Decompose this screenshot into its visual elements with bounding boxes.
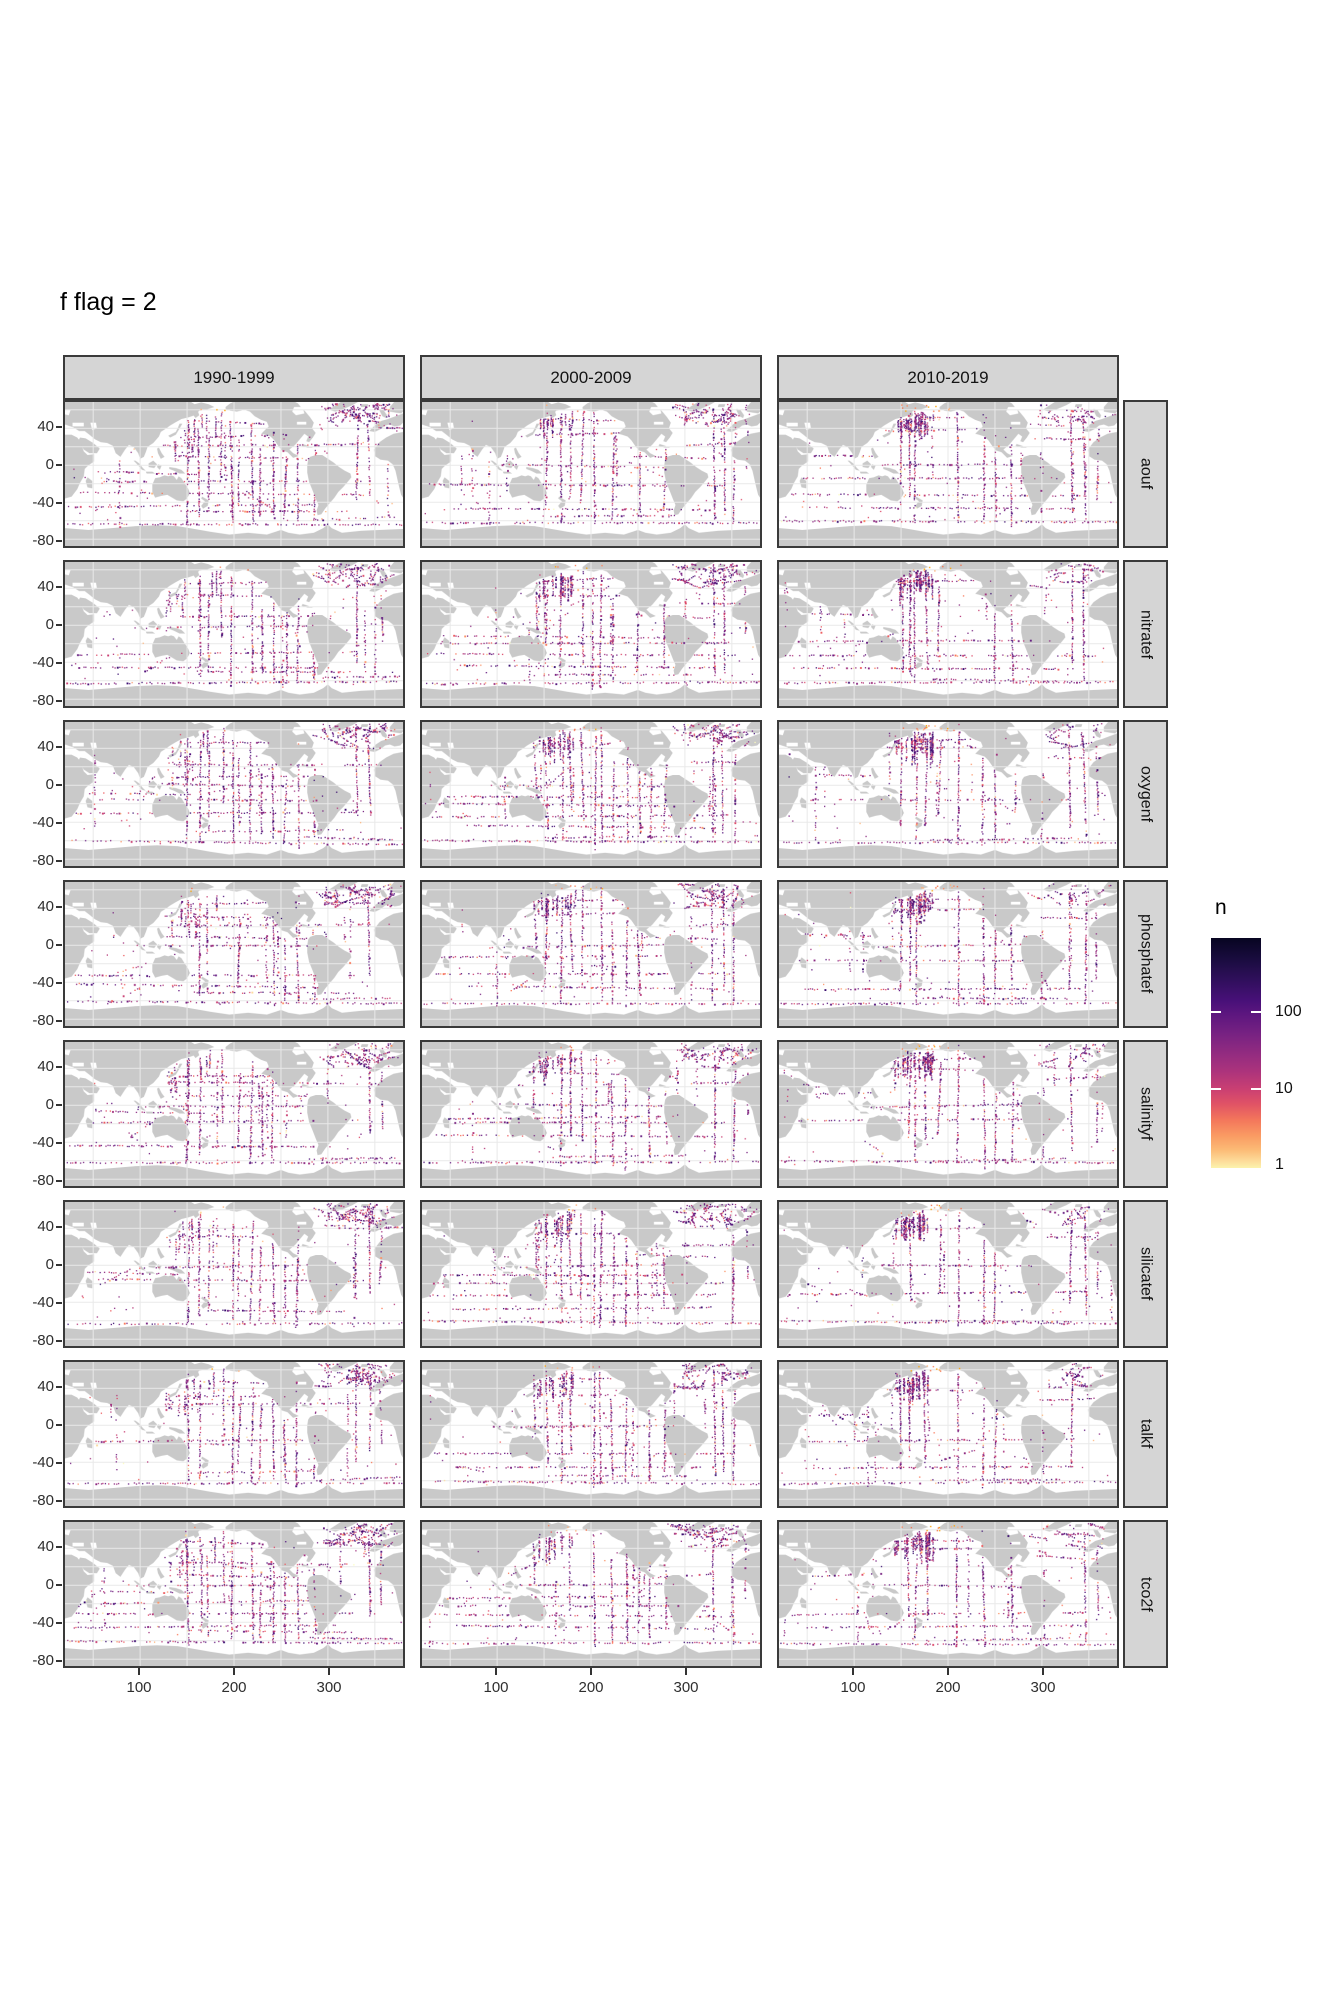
map-panel-r7-c1 [420,1520,762,1668]
facet-row-strip-5: silicatef [1123,1200,1168,1348]
facet-row-strip-3: phosphatef [1123,880,1168,1028]
y-tick-mark [56,1226,62,1228]
y-tick-mark [56,746,62,748]
y-tick-mark [56,1546,62,1548]
facet-row-strip-6: talkf [1123,1360,1168,1508]
y-tick-label: -40 [10,654,54,672]
y-tick-label: 40 [10,418,54,436]
map-panel-r3-c1 [420,880,762,1028]
legend-tick-label: 1 [1275,1157,1284,1173]
map-panel-r2-c0 [63,720,405,868]
world-map-canvas [422,1522,760,1666]
world-map-canvas [779,1042,1117,1186]
map-panel-r0-c1 [420,400,762,548]
facet-row-label: oxygenf [1137,766,1155,822]
y-tick-label: 0 [10,776,54,794]
facet-row-strip-0: aouf [1123,400,1168,548]
y-tick-label: -40 [10,1134,54,1152]
facet-column-label: 2000-2009 [550,368,631,388]
y-tick-label: -80 [10,692,54,710]
y-tick-mark [56,662,62,664]
map-panel-r4-c0 [63,1040,405,1188]
world-map-canvas [422,1362,760,1506]
y-tick-label: 0 [10,1256,54,1274]
y-tick-mark [56,860,62,862]
map-panel-r3-c2 [777,880,1119,1028]
x-tick-label: 200 [204,1679,264,1697]
y-tick-label: 40 [10,1058,54,1076]
legend-title: n [1215,896,1261,920]
world-map-canvas [422,722,760,866]
world-map-canvas [422,1202,760,1346]
y-tick-mark [56,426,62,428]
y-tick-mark [56,464,62,466]
y-tick-mark [56,1500,62,1502]
plot-title: f flag = 2 [60,288,157,317]
map-panel-r1-c0 [63,560,405,708]
x-tick-label: 300 [656,1679,716,1697]
facet-column-label: 1990-1999 [193,368,274,388]
map-panel-r2-c2 [777,720,1119,868]
x-tick-mark [138,1668,140,1675]
y-tick-label: 40 [10,578,54,596]
y-tick-mark [56,1066,62,1068]
world-map-canvas [779,402,1117,546]
facet-column-strip-1: 2000-2009 [420,355,762,400]
y-tick-mark [56,1302,62,1304]
legend-tick-mark [1211,1011,1221,1013]
y-tick-label: -40 [10,494,54,512]
y-tick-mark [56,1180,62,1182]
y-tick-label: -40 [10,1454,54,1472]
map-panel-r1-c2 [777,560,1119,708]
legend: n 100101 [1211,896,1261,1168]
world-map-canvas [422,402,760,546]
facet-row-label: salinityf [1137,1087,1155,1140]
map-panel-r6-c0 [63,1360,405,1508]
map-panel-r3-c0 [63,880,405,1028]
y-tick-label: -40 [10,814,54,832]
legend-colorbar: 100101 [1211,938,1261,1168]
y-tick-label: 40 [10,1378,54,1396]
y-tick-mark [56,1462,62,1464]
y-tick-mark [56,1424,62,1426]
facet-row-strip-1: nitratef [1123,560,1168,708]
y-tick-label: 40 [10,1218,54,1236]
x-tick-mark [495,1668,497,1675]
y-tick-label: 40 [10,1538,54,1556]
x-tick-label: 200 [918,1679,978,1697]
x-tick-mark [590,1668,592,1675]
y-tick-label: -80 [10,1012,54,1030]
y-tick-label: 0 [10,936,54,954]
figure: f flag = 2 1990-19992000-20092010-2019 a… [0,0,1344,2016]
facet-row-label: talkf [1137,1419,1155,1448]
x-tick-mark [947,1668,949,1675]
x-tick-label: 100 [466,1679,526,1697]
x-tick-mark [1042,1668,1044,1675]
facet-row-strip-2: oxygenf [1123,720,1168,868]
y-tick-mark [56,1142,62,1144]
world-map-canvas [422,882,760,1026]
x-tick-label: 300 [299,1679,359,1697]
y-tick-label: -80 [10,1652,54,1670]
y-tick-mark [56,982,62,984]
world-map-canvas [779,1522,1117,1666]
y-tick-mark [56,1386,62,1388]
map-panel-r1-c1 [420,560,762,708]
facet-row-label: aouf [1137,458,1155,489]
world-map-canvas [65,562,403,706]
x-tick-mark [328,1668,330,1675]
x-tick-mark [685,1668,687,1675]
world-map-canvas [65,882,403,1026]
y-tick-label: 0 [10,1576,54,1594]
y-tick-label: -80 [10,1332,54,1350]
x-tick-label: 200 [561,1679,621,1697]
y-tick-mark [56,944,62,946]
y-tick-label: 0 [10,1096,54,1114]
y-tick-label: -40 [10,974,54,992]
x-tick-mark [852,1668,854,1675]
y-tick-mark [56,502,62,504]
map-panel-r7-c2 [777,1520,1119,1668]
y-tick-mark [56,700,62,702]
y-tick-label: -80 [10,852,54,870]
y-tick-label: 0 [10,456,54,474]
world-map-canvas [779,722,1117,866]
y-tick-mark [56,906,62,908]
world-map-canvas [422,562,760,706]
world-map-canvas [422,1042,760,1186]
facet-row-strip-7: tco2f [1123,1520,1168,1668]
map-panel-r2-c1 [420,720,762,868]
y-tick-mark [56,1340,62,1342]
world-map-canvas [779,1362,1117,1506]
y-tick-mark [56,586,62,588]
map-panel-r5-c1 [420,1200,762,1348]
x-tick-mark [233,1668,235,1675]
map-panel-r7-c0 [63,1520,405,1668]
world-map-canvas [65,1042,403,1186]
map-panel-r5-c0 [63,1200,405,1348]
y-tick-label: -80 [10,1492,54,1510]
y-tick-mark [56,1104,62,1106]
world-map-canvas [65,1202,403,1346]
map-panel-r0-c0 [63,400,405,548]
x-tick-label: 100 [109,1679,169,1697]
facet-row-label: nitratef [1137,610,1155,659]
map-panel-r0-c2 [777,400,1119,548]
world-map-canvas [779,882,1117,1026]
x-tick-label: 300 [1013,1679,1073,1697]
map-panel-r5-c2 [777,1200,1119,1348]
legend-tick-mark [1251,1088,1261,1090]
facet-row-label: silicatef [1137,1247,1155,1300]
y-tick-label: 40 [10,898,54,916]
facet-row-label: phosphatef [1137,914,1155,993]
y-tick-mark [56,1584,62,1586]
y-tick-mark [56,1660,62,1662]
y-tick-label: 0 [10,616,54,634]
facet-row-strip-4: salinityf [1123,1040,1168,1188]
y-tick-mark [56,1622,62,1624]
y-tick-mark [56,540,62,542]
y-tick-label: 40 [10,738,54,756]
y-tick-mark [56,1264,62,1266]
legend-tick-mark [1211,1088,1221,1090]
y-tick-mark [56,784,62,786]
y-tick-label: -40 [10,1294,54,1312]
facet-column-strip-0: 1990-1999 [63,355,405,400]
map-panel-r4-c1 [420,1040,762,1188]
y-tick-label: -80 [10,1172,54,1190]
facet-row-label: tco2f [1137,1577,1155,1612]
y-tick-mark [56,822,62,824]
world-map-canvas [65,402,403,546]
y-tick-label: -40 [10,1614,54,1632]
map-panel-r6-c2 [777,1360,1119,1508]
x-tick-label: 100 [823,1679,883,1697]
map-panel-r6-c1 [420,1360,762,1508]
y-tick-mark [56,1020,62,1022]
legend-tick-mark [1251,1011,1261,1013]
world-map-canvas [65,1362,403,1506]
legend-tick-label: 10 [1275,1081,1293,1097]
world-map-canvas [779,1202,1117,1346]
facet-column-label: 2010-2019 [907,368,988,388]
facet-column-strip-2: 2010-2019 [777,355,1119,400]
map-panel-r4-c2 [777,1040,1119,1188]
legend-tick-label: 100 [1275,1004,1302,1020]
world-map-canvas [65,722,403,866]
world-map-canvas [65,1522,403,1666]
y-tick-label: 0 [10,1416,54,1434]
y-tick-label: -80 [10,532,54,550]
world-map-canvas [779,562,1117,706]
y-tick-mark [56,624,62,626]
